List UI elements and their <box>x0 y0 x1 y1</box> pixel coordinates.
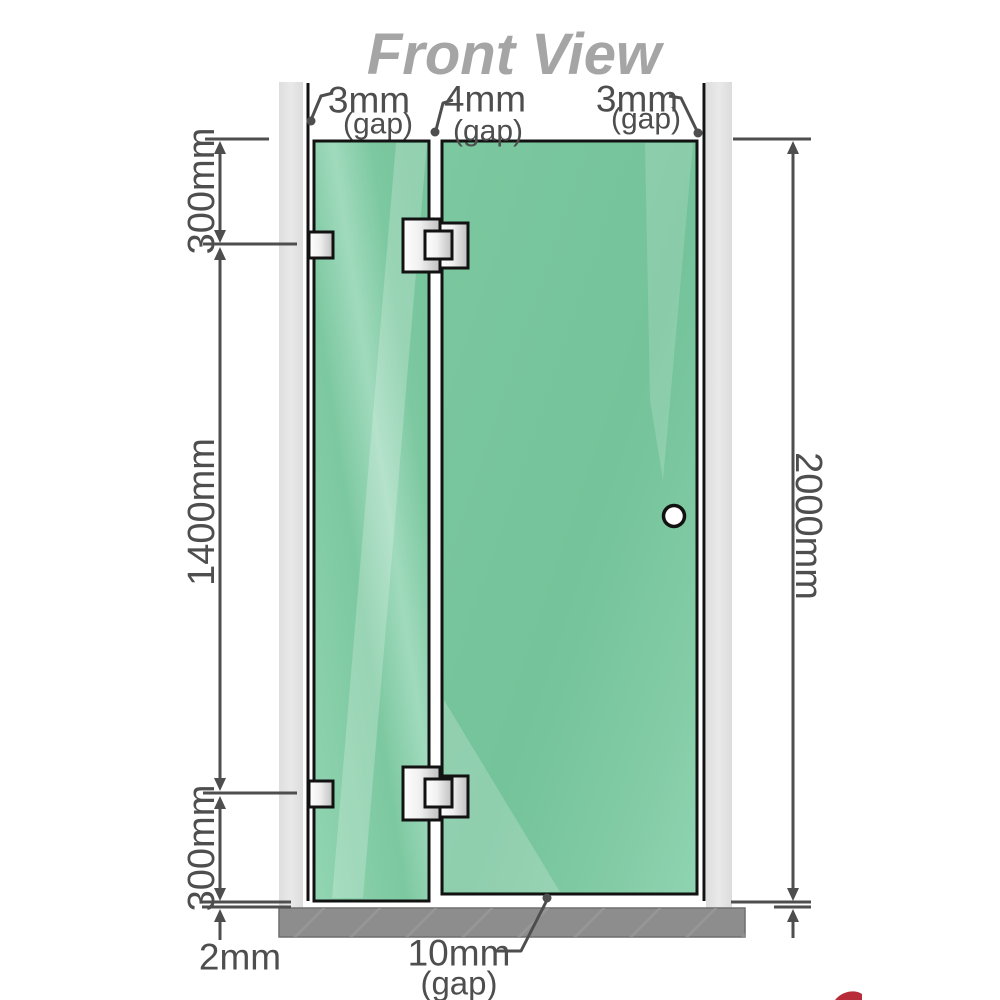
left-wall <box>279 82 303 908</box>
right-wall <box>706 82 732 908</box>
floor-base <box>279 908 745 937</box>
bottom-hinge <box>403 767 468 820</box>
leader-dot <box>543 894 552 903</box>
dim-label-300-bottom: 300mm <box>181 785 223 912</box>
front-view-diagram: Front View <box>0 0 1000 1000</box>
dim-label-1400: 1400mm <box>181 438 223 586</box>
leader-dot <box>307 117 316 126</box>
page-title: Front View <box>367 22 665 87</box>
gap-top-left-suffix: (gap) <box>343 108 413 141</box>
wall-bracket-top <box>309 232 333 258</box>
top-hinge-tab <box>425 231 452 259</box>
leader-dot <box>431 128 440 137</box>
wall-bracket-bottom <box>309 781 333 807</box>
bottom-hinge-tab <box>425 779 452 807</box>
door-knob <box>664 506 685 527</box>
dim-label-300-top: 300mm <box>181 128 223 255</box>
gap-top-middle-value: 4mm <box>444 79 526 120</box>
dim-label-2000: 2000mm <box>787 452 829 600</box>
diagram-svg: Front View <box>0 0 1000 1000</box>
gap-bottom-suffix: (gap) <box>420 965 497 1000</box>
leader-dot <box>694 129 703 138</box>
gap-top-middle-suffix: (gap) <box>453 115 523 148</box>
top-hinge <box>403 219 468 272</box>
door-glass-panel <box>442 141 697 894</box>
gap-top-right-suffix: (gap) <box>611 103 681 136</box>
dim-label-2mm: 2mm <box>199 937 281 978</box>
